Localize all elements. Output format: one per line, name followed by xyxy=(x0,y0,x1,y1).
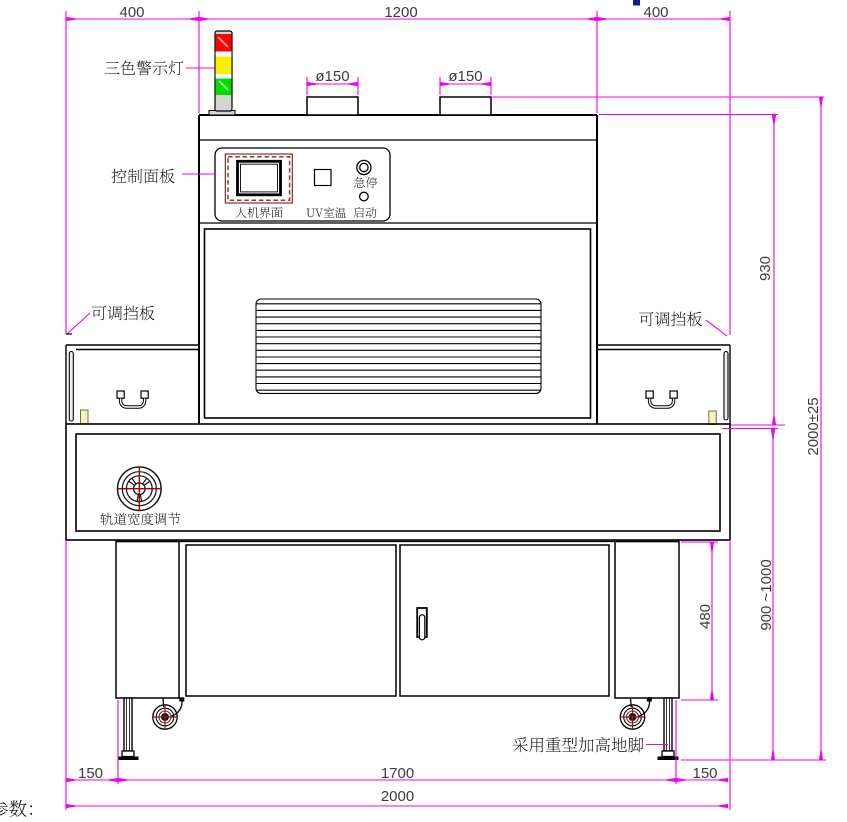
svg-text:400: 400 xyxy=(119,4,144,21)
svg-text:400: 400 xyxy=(643,4,668,21)
svg-text:150: 150 xyxy=(692,765,717,782)
svg-text:2000: 2000 xyxy=(381,788,414,805)
svg-text:1700: 1700 xyxy=(381,765,414,782)
svg-text:1200: 1200 xyxy=(384,4,417,21)
svg-text:900 ~1000: 900 ~1000 xyxy=(758,559,775,630)
svg-text:ø150: ø150 xyxy=(448,68,482,85)
svg-text:150: 150 xyxy=(78,765,103,782)
svg-text:930: 930 xyxy=(757,256,774,281)
svg-text:ø150: ø150 xyxy=(315,68,349,85)
svg-text:480: 480 xyxy=(697,604,714,629)
svg-text:2000±25: 2000±25 xyxy=(805,397,822,455)
